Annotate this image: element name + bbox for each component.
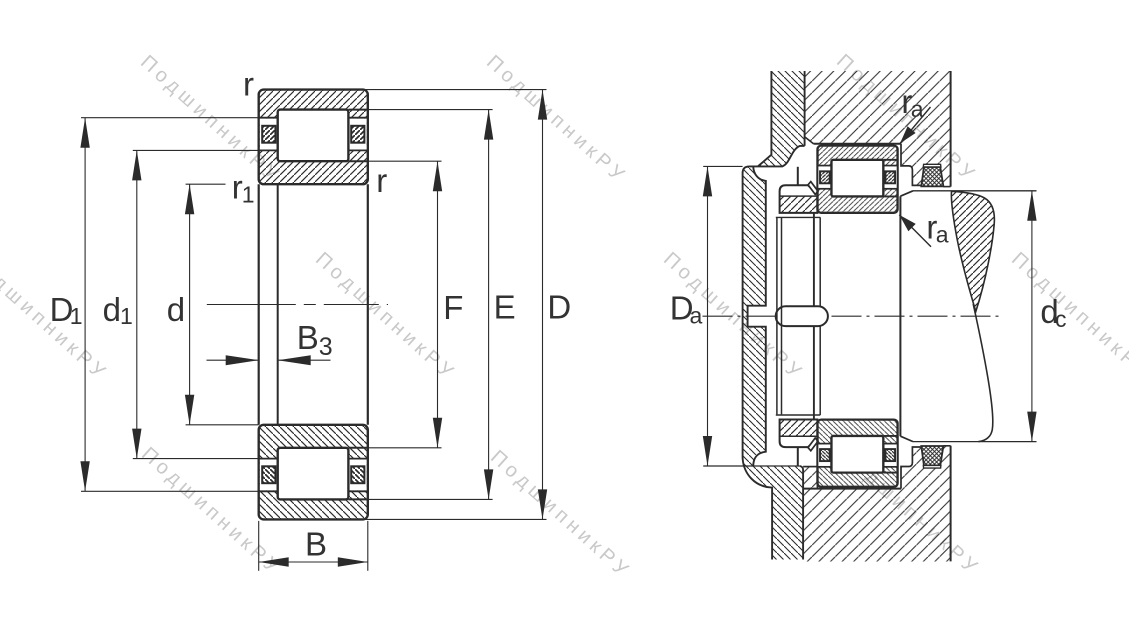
- svg-text:d: d: [103, 291, 121, 328]
- svg-text:E: E: [494, 289, 516, 326]
- svg-text:B: B: [297, 319, 319, 356]
- svg-text:a: a: [911, 96, 924, 122]
- svg-text:B: B: [305, 525, 327, 562]
- svg-text:3: 3: [319, 333, 333, 361]
- svg-text:r: r: [376, 162, 387, 199]
- svg-text:c: c: [1055, 306, 1067, 332]
- svg-text:1: 1: [70, 303, 83, 329]
- svg-text:a: a: [936, 222, 949, 248]
- svg-text:d: d: [167, 291, 185, 328]
- svg-text:1: 1: [242, 181, 255, 207]
- svg-text:D: D: [547, 289, 571, 326]
- svg-text:r: r: [243, 66, 254, 103]
- svg-text:a: a: [690, 303, 703, 329]
- svg-text:F: F: [443, 289, 463, 326]
- svg-text:1: 1: [120, 303, 133, 329]
